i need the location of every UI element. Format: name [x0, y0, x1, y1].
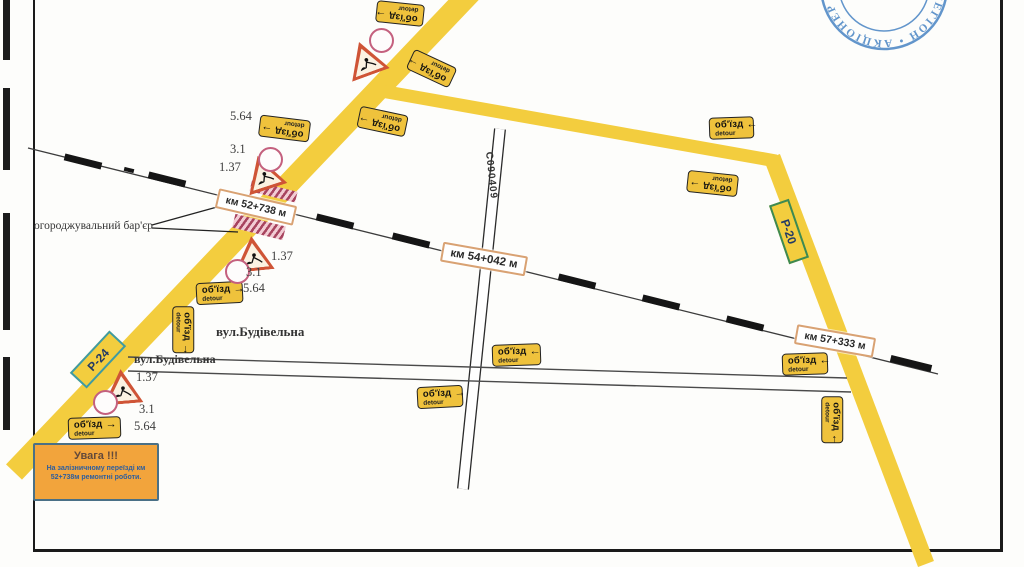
- arrow-right-icon: →: [375, 10, 387, 19]
- sign-ref-number: 5.64: [230, 109, 252, 124]
- detour-sign: об'їзд→ detour: [195, 281, 243, 305]
- sign-ref-number: 5.64: [243, 281, 265, 296]
- detour-sign: об'їзд← detour: [709, 116, 755, 139]
- detour-sign: об'їзд← detour: [492, 343, 542, 366]
- no-entry-circle-sign: [369, 28, 394, 53]
- no-entry-circle-sign: [258, 147, 283, 172]
- warning-text-line2: 52+738м ремонтні роботи.: [35, 473, 157, 482]
- arrow-right-icon: →: [689, 180, 701, 189]
- street-label-budivelna-upper: вул.Будівельна: [216, 324, 304, 340]
- arrow-right-icon: →: [358, 116, 370, 126]
- warning-text-line1: На залізничному переїзді км: [35, 464, 157, 473]
- sign-ref-number: 1.37: [271, 249, 293, 264]
- round-stamp: АКЦІОНЕР • РЕГІОН • АКЦІОНЕР • РЕГІОН • …: [821, 0, 947, 49]
- sign-ref-number: 1.37: [219, 160, 241, 175]
- warning-note-box: Увага !!! На залізничному переїзді км 52…: [33, 443, 159, 501]
- barrier-label: огороджувальний бар'єр: [34, 220, 153, 232]
- sign-ref-number: 3.1: [246, 265, 262, 280]
- arrow-right-icon: →: [454, 388, 465, 397]
- no-entry-circle-sign: [93, 390, 118, 415]
- detour-sign: об'їзд→ detour: [68, 416, 122, 439]
- arrow-left-icon: ←: [832, 434, 840, 445]
- svg-text:АКЦІОНЕР • РЕГІОН • АКЦІОНЕР •: АКЦІОНЕР • РЕГІОН • АКЦІОНЕР • РЕГІОН • …: [821, 0, 947, 49]
- sign-ref-number: 3.1: [230, 142, 246, 157]
- detour-sign: об'їзд← detour: [782, 352, 829, 375]
- detour-sign: об'їзд→ detour: [416, 385, 463, 409]
- sign-ref-number: 3.1: [139, 402, 155, 417]
- sign-ref-number: 1.37: [136, 370, 158, 385]
- arrow-left-icon: ←: [819, 356, 830, 364]
- detour-sign: об'їзд→ detour: [173, 306, 195, 353]
- arrow-left-icon: ←: [746, 120, 757, 128]
- arrow-left-icon: ←: [529, 347, 540, 355]
- detour-sign: об'їзд← detour: [822, 396, 844, 443]
- arrow-right-icon: →: [261, 125, 273, 134]
- detour-scheme-page: АКЦІОНЕР • РЕГІОН • АКЦІОНЕР • РЕГІОН • …: [0, 0, 1024, 567]
- street-line-lower: [128, 371, 851, 392]
- street-label-budivelna-lower: вул.Будівельна: [134, 352, 216, 367]
- arrow-right-icon: →: [406, 57, 419, 69]
- leader-line-2: [152, 228, 238, 232]
- arrow-right-icon: →: [105, 420, 116, 428]
- sign-ref-number: 5.64: [134, 419, 156, 434]
- street-line-upper: [128, 357, 847, 378]
- warning-title: Увага !!!: [35, 450, 157, 462]
